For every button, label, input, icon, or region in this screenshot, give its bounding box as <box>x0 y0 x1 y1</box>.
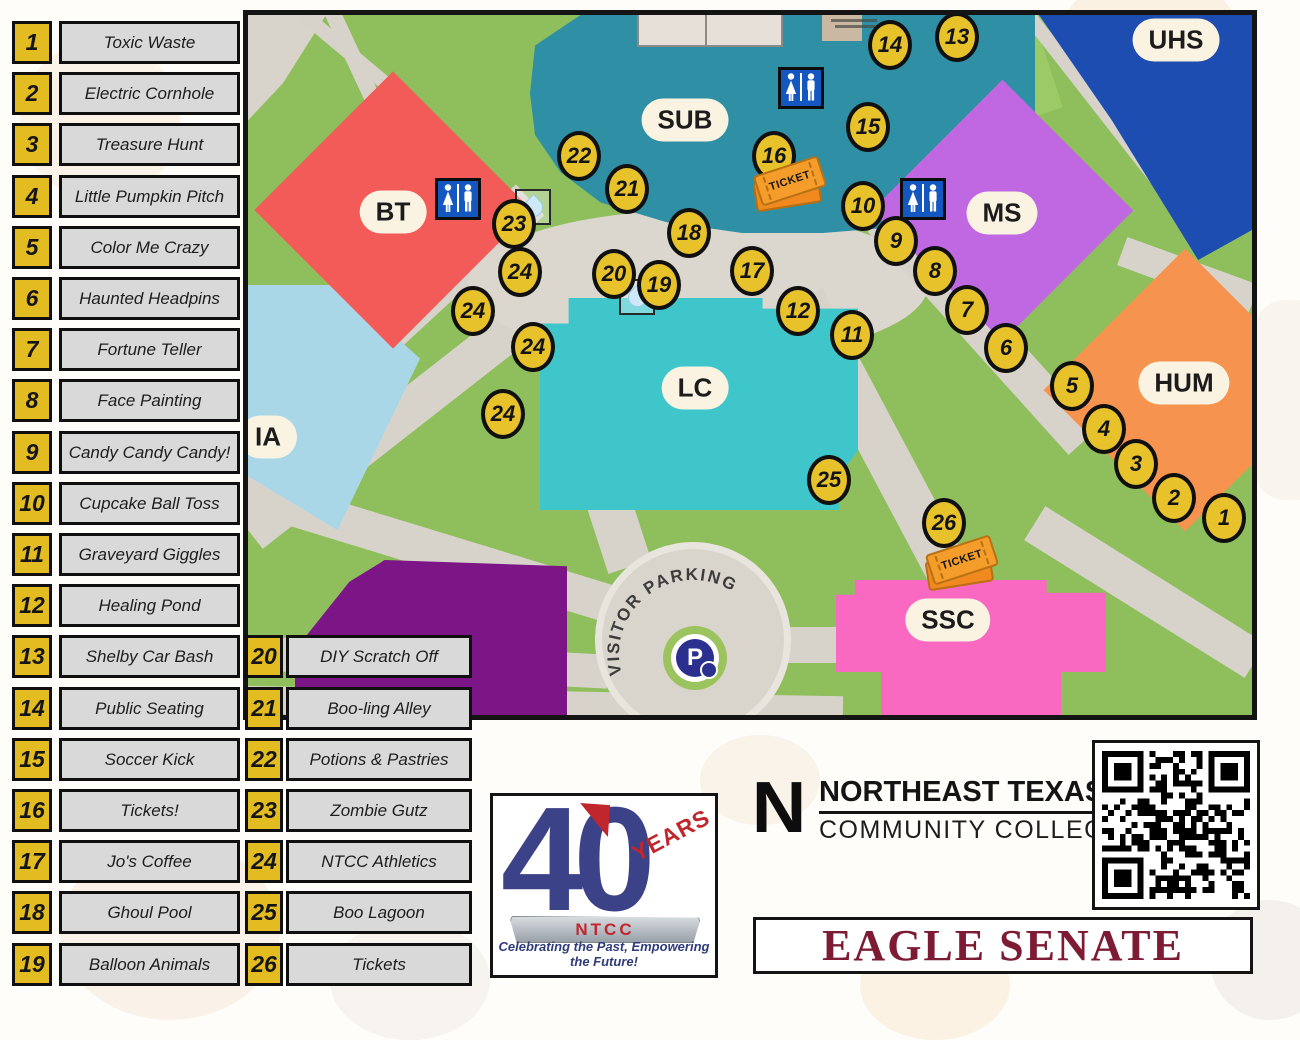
building-label-hum: HUM <box>1138 362 1229 405</box>
legend-number-26: 26 <box>245 943 283 986</box>
legend-label-8: Face Painting <box>59 379 240 422</box>
map-marker-14: 14 <box>868 20 912 70</box>
legend-label-11: Graveyard Giggles <box>59 533 240 576</box>
parking-icon-dot <box>700 661 718 679</box>
eagle-senate-banner: EAGLE SENATE <box>753 917 1253 974</box>
map-marker-25: 25 <box>807 455 851 505</box>
map-marker-10: 10 <box>841 181 885 231</box>
legend-label-10: Cupcake Ball Toss <box>59 482 240 525</box>
map-marker-8: 8 <box>913 246 957 296</box>
legend-number-14: 14 <box>12 687 52 730</box>
legend-label-24: NTCC Athletics <box>286 840 472 883</box>
logo-red-accent <box>578 803 610 837</box>
legend-label-23: Zombie Gutz <box>286 789 472 832</box>
ntcc-40-years-logo: 40 YEARS NTCC Celebrating the Past, Empo… <box>490 793 718 978</box>
building-purple <box>295 560 567 715</box>
logo-40-number: 40 <box>501 782 646 937</box>
map-marker-22: 22 <box>557 131 601 181</box>
legend-number-23: 23 <box>245 789 283 832</box>
map-marker-19: 19 <box>637 260 681 310</box>
legend-label-17: Jo's Coffee <box>59 840 240 883</box>
map-marker-15: 15 <box>846 102 890 152</box>
legend-label-12: Healing Pond <box>59 584 240 627</box>
building-label-ssc: SSC <box>905 599 990 642</box>
college-name-line2: COMMUNITY COLLEGE <box>819 816 1123 845</box>
map-marker-11: 11 <box>830 310 874 360</box>
background-decoration <box>1255 300 1300 500</box>
legend-number-1: 1 <box>12 21 52 64</box>
legend-label-5: Color Me Crazy <box>59 226 240 269</box>
map-marker-26: 26 <box>922 498 966 548</box>
building-label-ia: IA <box>243 416 297 459</box>
map-marker-13: 13 <box>935 12 979 62</box>
legend-number-2: 2 <box>12 72 52 115</box>
building-label-lc: LC <box>662 367 729 410</box>
college-name-line1: NORTHEAST TEXAS <box>819 776 1123 814</box>
map-marker-21: 21 <box>605 164 649 214</box>
legend-number-6: 6 <box>12 277 52 320</box>
restroom-icon <box>900 178 946 220</box>
map-marker-12: 12 <box>776 286 820 336</box>
map-marker-17: 17 <box>730 246 774 296</box>
legend-label-22: Potions & Pastries <box>286 738 472 781</box>
logo-tagline: Celebrating the Past, Empowering the Fut… <box>493 939 715 969</box>
restroom-icon <box>778 67 824 109</box>
legend-number-12: 12 <box>12 584 52 627</box>
map-marker-5: 5 <box>1050 361 1094 411</box>
legend-number-5: 5 <box>12 226 52 269</box>
legend-label-25: Boo Lagoon <box>286 891 472 934</box>
map-marker-1: 1 <box>1202 493 1246 543</box>
map-marker-6: 6 <box>984 323 1028 373</box>
legend-number-24: 24 <box>245 840 283 883</box>
legend-label-2: Electric Cornhole <box>59 72 240 115</box>
qr-code <box>1092 740 1260 910</box>
legend-label-4: Little Pumpkin Pitch <box>59 175 240 218</box>
legend-label-13: Shelby Car Bash <box>59 635 240 678</box>
legend-number-16: 16 <box>12 789 52 832</box>
legend-number-7: 7 <box>12 328 52 371</box>
legend-label-18: Ghoul Pool <box>59 891 240 934</box>
legend-number-4: 4 <box>12 175 52 218</box>
map-marker-24: 24 <box>481 389 525 439</box>
legend-number-9: 9 <box>12 431 52 474</box>
eagle-senate-text: EAGLE SENATE <box>822 920 1184 971</box>
legend-label-15: Soccer Kick <box>59 738 240 781</box>
building-ssc <box>881 670 1061 717</box>
legend-number-25: 25 <box>245 891 283 934</box>
map-marker-24: 24 <box>498 247 542 297</box>
legend-label-1: Toxic Waste <box>59 21 240 64</box>
legend-label-6: Haunted Headpins <box>59 277 240 320</box>
legend-number-18: 18 <box>12 891 52 934</box>
map-marker-24: 24 <box>451 286 495 336</box>
map-marker-9: 9 <box>874 216 918 266</box>
parking-icon: P <box>663 626 727 690</box>
map-marker-2: 2 <box>1152 473 1196 523</box>
legend-label-9: Candy Candy Candy! <box>59 431 240 474</box>
map-marker-23: 23 <box>492 199 536 249</box>
campus-map: VISITOR PARKING P BTSUBUHSMSHUMLCSSCIA <box>243 10 1257 720</box>
legend-number-15: 15 <box>12 738 52 781</box>
background-decoration <box>20 40 180 200</box>
legend-number-11: 11 <box>12 533 52 576</box>
college-wordmark: N NORTHEAST TEXAS COMMUNITY COLLEGE <box>753 776 1123 845</box>
map-marker-24: 24 <box>511 322 555 372</box>
map-marker-7: 7 <box>945 285 989 335</box>
legend-number-8: 8 <box>12 379 52 422</box>
legend-number-10: 10 <box>12 482 52 525</box>
background-decoration <box>330 920 490 1040</box>
legend-label-14: Public Seating <box>59 687 240 730</box>
legend-label-26: Tickets <box>286 943 472 986</box>
restroom-icon <box>435 178 481 220</box>
legend-label-7: Fortune Teller <box>59 328 240 371</box>
legend-number-13: 13 <box>12 635 52 678</box>
map-marker-3: 3 <box>1114 439 1158 489</box>
map-marker-4: 4 <box>1082 404 1126 454</box>
small-map-text <box>831 19 877 22</box>
parking-icon-letter: P <box>676 639 714 677</box>
building-label-uhs: UHS <box>1133 19 1220 62</box>
background-decoration <box>60 840 280 1020</box>
college-initial: N <box>752 776 807 841</box>
legend-number-3: 3 <box>12 123 52 166</box>
sub-courtyard <box>637 15 783 47</box>
map-marker-18: 18 <box>667 208 711 258</box>
building-label-bt: BT <box>360 191 427 234</box>
legend-number-19: 19 <box>12 943 52 986</box>
building-label-ms: MS <box>967 192 1038 235</box>
legend-label-3: Treasure Hunt <box>59 123 240 166</box>
parking-icon-ring: P <box>671 634 719 682</box>
legend-label-16: Tickets! <box>59 789 240 832</box>
legend-number-22: 22 <box>245 738 283 781</box>
building-label-sub: SUB <box>642 99 729 142</box>
map-marker-20: 20 <box>592 249 636 299</box>
legend-number-17: 17 <box>12 840 52 883</box>
legend-label-19: Balloon Animals <box>59 943 240 986</box>
